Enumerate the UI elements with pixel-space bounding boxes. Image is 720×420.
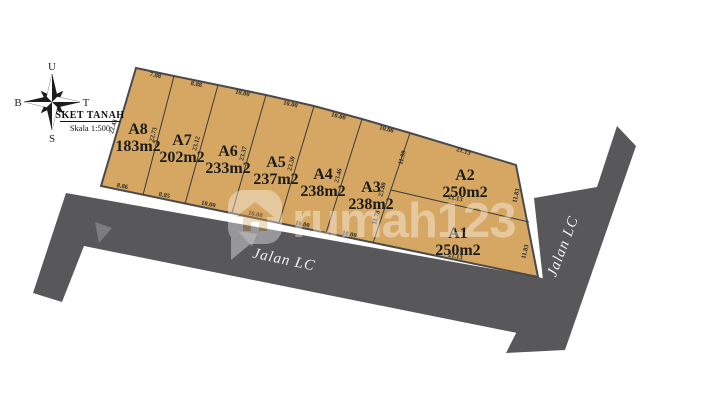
- sketch-scale: Skala 1:500: [70, 123, 110, 133]
- plot-a4-id: A4: [313, 166, 333, 183]
- plot-a5-id: A5: [266, 154, 286, 171]
- sketch-title: SKET TANAH: [55, 110, 124, 121]
- plot-a6-id: A6: [218, 143, 238, 160]
- site-plan-canvas: A8 183m2 A7 202m2 A6 233m2 A5 237m2 A4 2…: [0, 0, 720, 420]
- compass-west-label: B: [14, 97, 21, 109]
- plot-a2-id: A2: [455, 167, 475, 184]
- site-plan-drawing: A8 183m2 A7 202m2 A6 233m2 A5 237m2 A4 2…: [0, 0, 720, 420]
- watermark-house-door: [251, 222, 259, 231]
- plot-a5-area: 237m2: [253, 171, 298, 188]
- plot-a7-id: A7: [172, 132, 192, 149]
- watermark-brand-text: rumah123: [292, 194, 516, 248]
- compass-north-label: U: [48, 61, 56, 73]
- compass-south-label: S: [49, 133, 55, 145]
- plot-a6-area: 233m2: [205, 160, 250, 177]
- plot-a8-id: A8: [128, 121, 148, 138]
- compass-east-label: T: [83, 97, 90, 109]
